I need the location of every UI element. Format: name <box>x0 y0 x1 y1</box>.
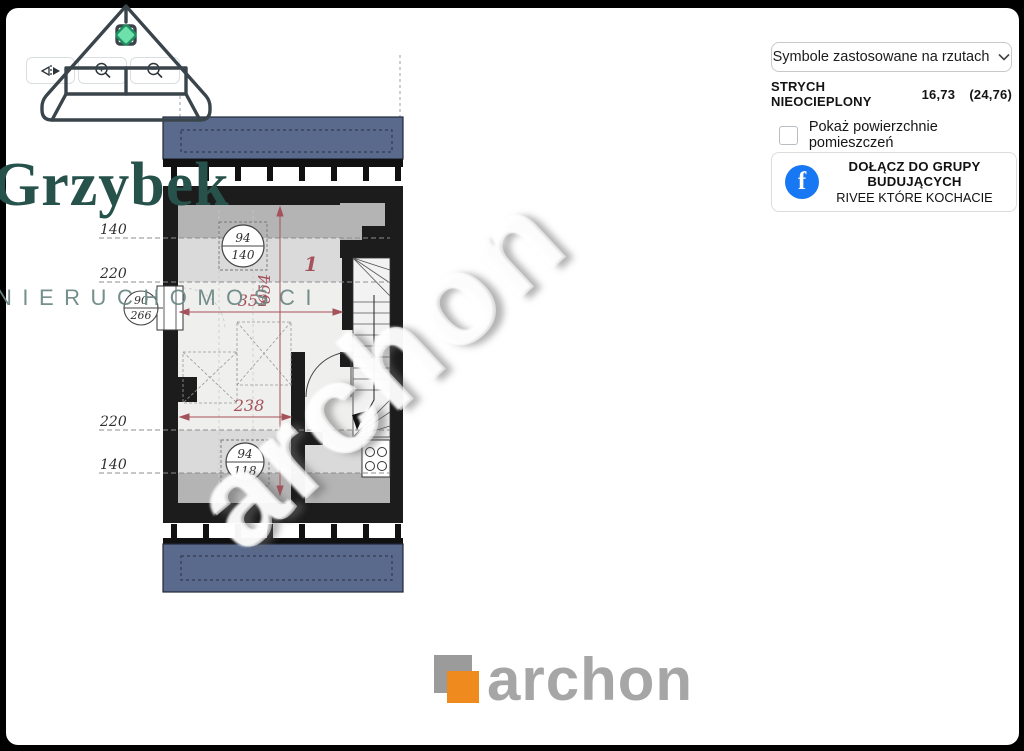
area-value-secondary: (24,76) <box>969 87 1012 102</box>
height-label-140-bottom: 140 <box>100 457 127 473</box>
facebook-group-button[interactable]: f DOŁĄCZ DO GRUPY BUDUJĄCYCH RIVEE KTÓRE… <box>771 152 1017 212</box>
symbols-dropdown-button[interactable]: Symbole zastosowane na rzutach <box>771 42 1012 72</box>
height-label-220-bottom: 220 <box>99 414 127 430</box>
dim-width-bottom: 238 <box>233 396 265 415</box>
area-label: STRYCH NIEOCIEPLONY <box>771 79 922 109</box>
area-value: 16,73 <box>922 87 956 102</box>
facebook-text: DOŁĄCZ DO GRUPY BUDUJĄCYCH RIVEE KTÓRE K… <box>819 159 1016 206</box>
facebook-icon: f <box>785 165 819 199</box>
svg-text:118: 118 <box>234 464 257 478</box>
page: 140 220 220 140 94 140 90 266 94 118 <box>0 0 1024 751</box>
brand-tagline: NIERUCHOMOŚCI <box>0 285 322 311</box>
show-areas-row: Pokaż powierzchnie pomieszczeń <box>779 119 1024 151</box>
staircase <box>352 258 390 437</box>
area-summary-row: STRYCH NIEOCIEPLONY 16,73 (24,76) <box>771 79 1012 109</box>
facebook-line2: BUDUJĄCYCH <box>819 174 1010 190</box>
room-number: 1 <box>304 252 318 276</box>
show-areas-checkbox[interactable] <box>779 126 798 145</box>
symbols-dropdown-label: Symbole zastosowane na rzutach <box>773 49 990 65</box>
chevron-down-icon <box>998 53 1010 61</box>
svg-text:140: 140 <box>232 248 255 262</box>
svg-text:94: 94 <box>237 447 252 461</box>
stove-symbol <box>362 440 390 477</box>
roof-band-bottom <box>163 538 403 592</box>
height-label-220-top: 220 <box>99 266 127 282</box>
height-label-140-top: 140 <box>100 222 127 238</box>
house-logo-icon <box>0 0 220 135</box>
facebook-line3: RIVEE KTÓRE KOCHACIE <box>819 190 1010 206</box>
facebook-line1: DOŁĄCZ DO GRUPY <box>819 159 1010 175</box>
brand-logo-text: Grzybek <box>0 150 230 221</box>
show-areas-label: Pokaż powierzchnie pomieszczeń <box>809 119 1024 151</box>
svg-text:94: 94 <box>235 231 250 245</box>
rafter-row-bottom <box>171 524 401 538</box>
archon-logo-text: archon <box>487 645 693 714</box>
archon-logo-orange-square <box>447 671 479 703</box>
